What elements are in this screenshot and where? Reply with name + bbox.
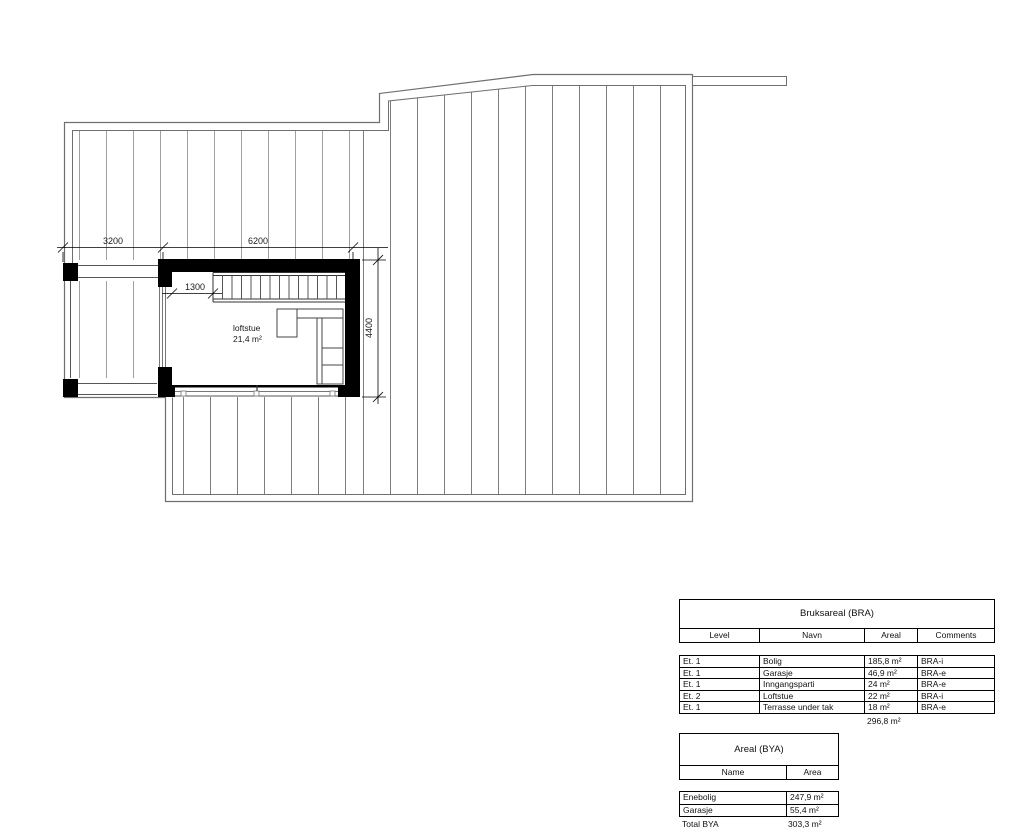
dim-1300-label: 1300 xyxy=(185,282,205,292)
bra-data-box: Et. 1 Bolig 185,8 m² BRA-i Et. 1 Garasje… xyxy=(679,655,995,714)
cell-areal: 24 m² xyxy=(864,679,917,690)
table-row: Et. 2 Loftstue 22 m² BRA-i xyxy=(680,690,994,702)
cell-comments: BRA-i xyxy=(917,691,994,702)
cell-navn: Terrasse under tak xyxy=(759,702,864,713)
cell-navn: Bolig xyxy=(759,656,864,667)
bra-col-level: Level xyxy=(680,629,759,642)
bya-col-area: Area xyxy=(786,766,838,779)
bra-col-areal: Areal xyxy=(864,629,917,642)
bra-column-headers: Level Navn Areal Comments xyxy=(680,628,994,642)
window-left xyxy=(160,287,166,367)
bya-header-box: Areal (BYA) Name Area xyxy=(679,733,839,780)
cell-level: Et. 2 xyxy=(680,691,759,702)
cell-areal: 22 m² xyxy=(864,691,917,702)
cell-comments: BRA-i xyxy=(917,656,994,667)
bya-table: Areal (BYA) Name Area Enebolig 247,9 m² … xyxy=(679,733,839,829)
hatch-pergola xyxy=(74,281,145,378)
bya-col-name: Name xyxy=(680,766,786,779)
cell-area: 55,4 m² xyxy=(786,805,838,817)
cell-navn: Garasje xyxy=(759,668,864,679)
roof-hatch xyxy=(72,85,685,494)
bya-total-value: 303,3 m² xyxy=(788,819,822,829)
table-row: Et. 1 Terrasse under tak 18 m² BRA-e xyxy=(680,701,994,713)
bya-table-title: Areal (BYA) xyxy=(680,734,838,765)
table-row: Enebolig 247,9 m² xyxy=(680,792,838,804)
cell-name: Enebolig xyxy=(680,792,786,804)
room-label: loftstue xyxy=(233,323,261,333)
table-row: Et. 1 Bolig 185,8 m² BRA-i xyxy=(680,656,994,667)
cell-area: 247,9 m² xyxy=(786,792,838,804)
window-bottom xyxy=(175,385,338,396)
table-row: Garasje 55,4 m² xyxy=(680,804,838,817)
bra-col-comments: Comments xyxy=(917,629,994,642)
dim-3200-label: 3200 xyxy=(103,236,123,246)
cell-areal: 18 m² xyxy=(864,702,917,713)
dim-6200-label: 6200 xyxy=(248,236,268,246)
cell-level: Et. 1 xyxy=(680,702,759,713)
hatch-right-roof xyxy=(389,85,685,494)
cell-comments: BRA-e xyxy=(917,702,994,713)
bra-table: Bruksareal (BRA) Level Navn Areal Commen… xyxy=(679,599,995,726)
bya-column-headers: Name Area xyxy=(680,765,838,779)
cell-name: Garasje xyxy=(680,805,786,817)
cell-level: Et. 1 xyxy=(680,668,759,679)
bya-total-row: Total BYA 303,3 m² xyxy=(679,819,839,829)
bra-table-title: Bruksareal (BRA) xyxy=(680,600,994,628)
cell-navn: Inngangsparti xyxy=(759,679,864,690)
table-row: Et. 1 Garasje 46,9 m² BRA-e xyxy=(680,667,994,679)
table-row: Et. 1 Inngangsparti 24 m² BRA-e xyxy=(680,678,994,690)
room-area-label: 21,4 m² xyxy=(233,334,262,344)
roof-overhang-bar xyxy=(693,77,787,86)
dim-4400-label: 4400 xyxy=(364,318,374,338)
cell-navn: Loftstue xyxy=(759,691,864,702)
bya-total-label: Total BYA xyxy=(679,819,788,829)
cell-level: Et. 1 xyxy=(680,679,759,690)
cell-level: Et. 1 xyxy=(680,656,759,667)
drawing-page: 3200 6200 1300 4400 loftstue 21,4 m² Bru… xyxy=(0,0,1013,837)
bra-header-box: Bruksareal (BRA) Level Navn Areal Commen… xyxy=(679,599,995,643)
hatch-below-room xyxy=(176,397,352,494)
bra-col-navn: Navn xyxy=(759,629,864,642)
cell-comments: BRA-e xyxy=(917,668,994,679)
bya-data-box: Enebolig 247,9 m² Garasje 55,4 m² xyxy=(679,791,839,817)
cell-areal: 46,9 m² xyxy=(864,668,917,679)
sofa xyxy=(277,309,343,384)
bra-total: 296,8 m² xyxy=(867,716,995,726)
stairs xyxy=(213,273,345,303)
cell-comments: BRA-e xyxy=(917,679,994,690)
hatch-strip-right-of-room xyxy=(361,130,366,494)
cell-areal: 185,8 m² xyxy=(864,656,917,667)
